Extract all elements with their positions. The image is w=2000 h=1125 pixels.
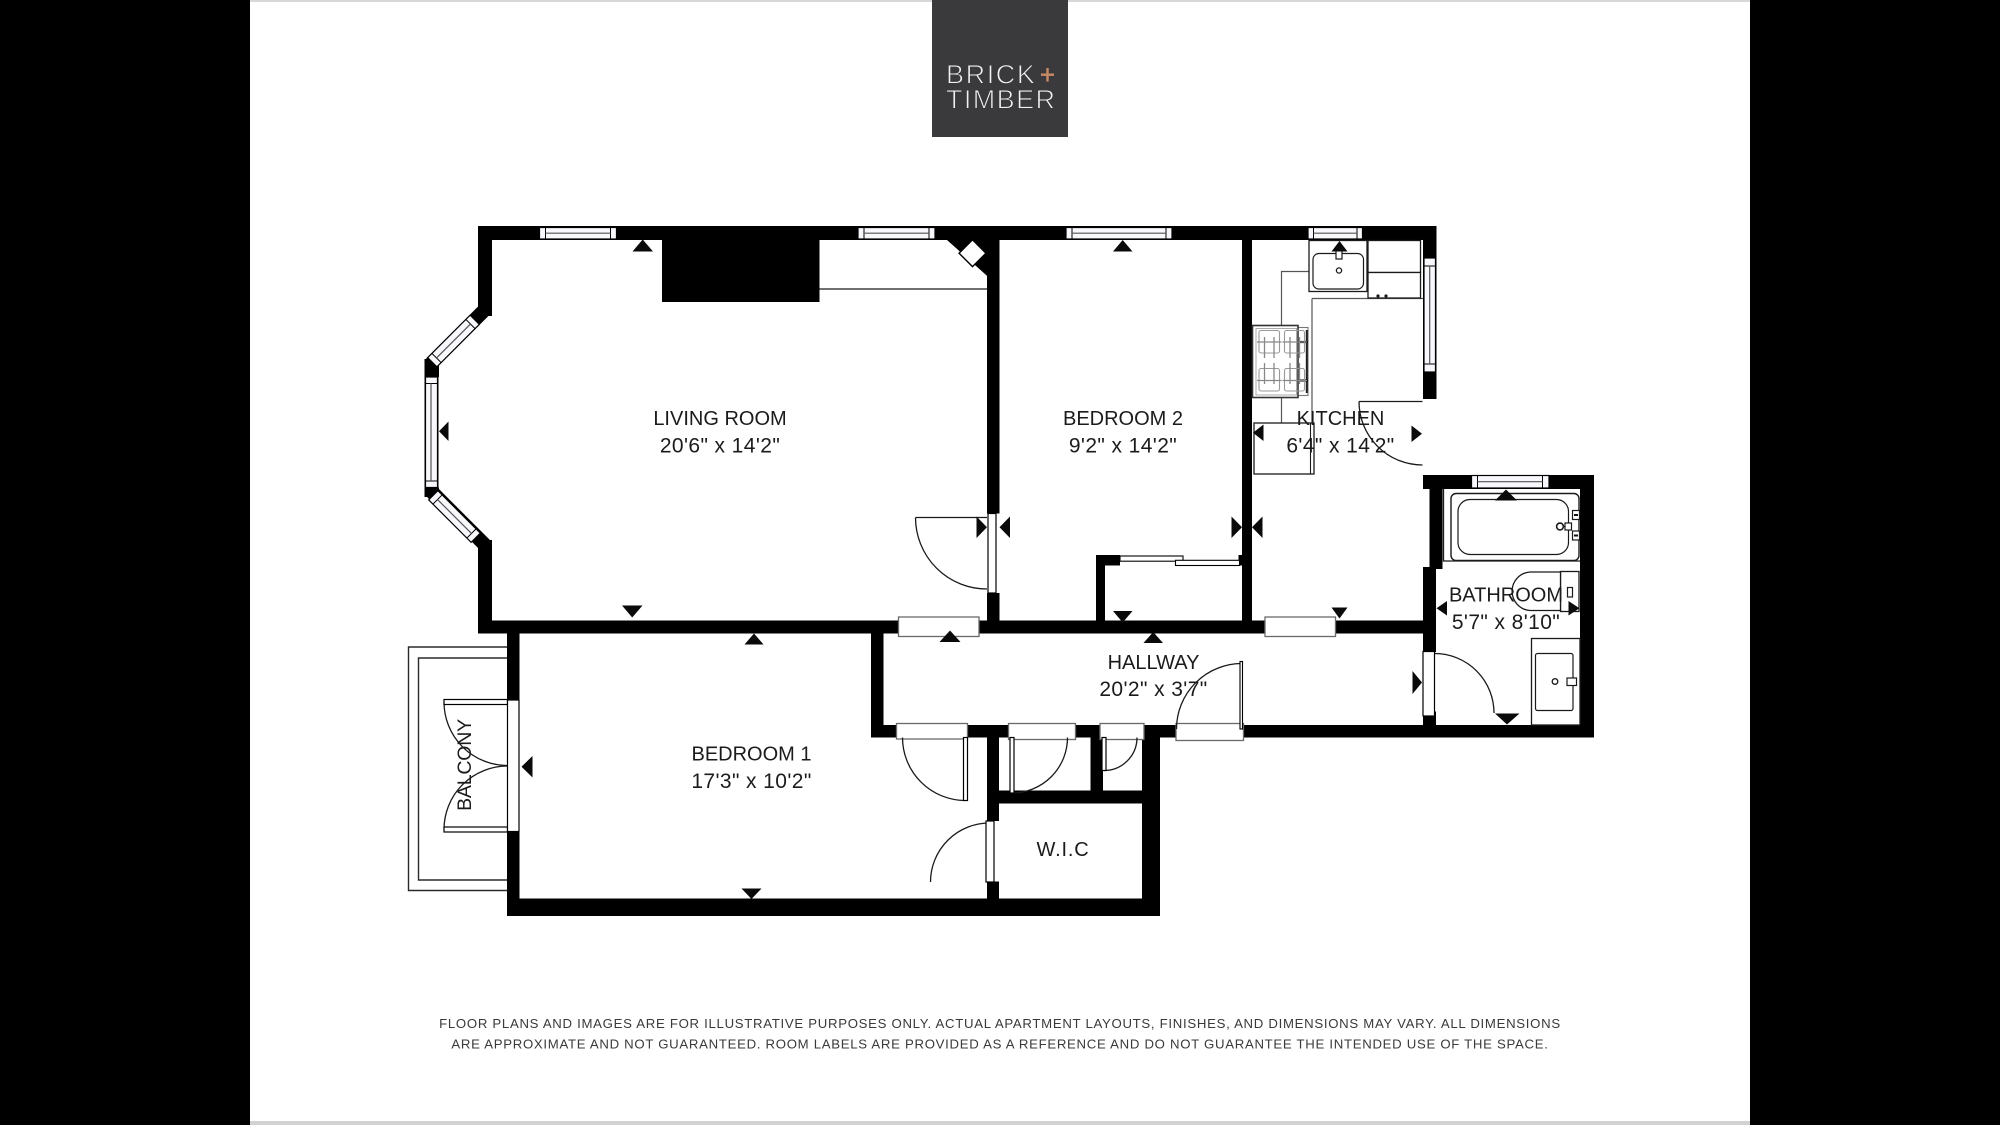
svg-text:FLOOR PLANS AND IMAGES ARE FOR: FLOOR PLANS AND IMAGES ARE FOR ILLUSTRAT… — [439, 1016, 1561, 1031]
svg-text:BALCONY: BALCONY — [454, 719, 476, 811]
svg-text:BEDROOM 1: BEDROOM 1 — [691, 744, 811, 766]
svg-text:LIVING ROOM: LIVING ROOM — [653, 408, 786, 430]
svg-text:BEDROOM 2: BEDROOM 2 — [1063, 408, 1183, 430]
svg-text:BATHROOM: BATHROOM — [1449, 585, 1563, 607]
svg-text:5'7" x 8'10": 5'7" x 8'10" — [1452, 611, 1560, 634]
svg-text:KITCHEN: KITCHEN — [1297, 408, 1385, 430]
svg-text:20'6" x 14'2": 20'6" x 14'2" — [660, 435, 780, 458]
svg-text:ARE APPROXIMATE AND NOT GUARAN: ARE APPROXIMATE AND NOT GUARANTEED. ROOM… — [451, 1037, 1548, 1052]
svg-text:TIMBER: TIMBER — [946, 85, 1056, 115]
svg-text:W.I.C: W.I.C — [1037, 839, 1090, 861]
svg-text:6'4" x 14'2": 6'4" x 14'2" — [1286, 435, 1394, 458]
svg-text:17'3" x 10'2": 17'3" x 10'2" — [691, 770, 811, 793]
svg-text:HALLWAY: HALLWAY — [1108, 652, 1200, 674]
svg-text:20'2" x 3'7": 20'2" x 3'7" — [1099, 678, 1207, 701]
svg-text:9'2" x 14'2": 9'2" x 14'2" — [1069, 435, 1177, 458]
